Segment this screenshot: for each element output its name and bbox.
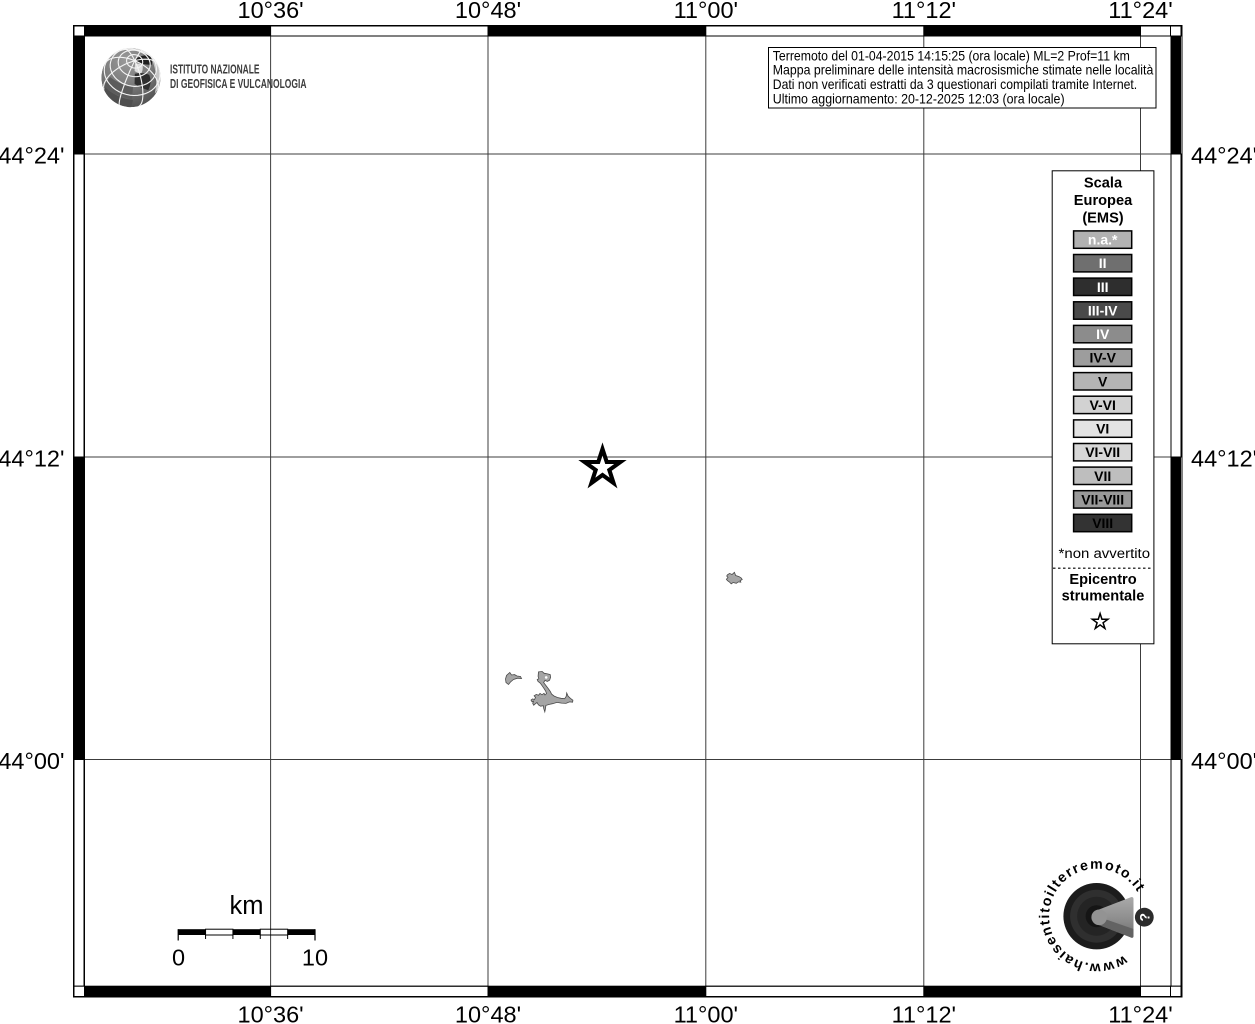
- svg-text:km: km: [230, 892, 264, 920]
- svg-text:44°12': 44°12': [0, 446, 65, 472]
- svg-text:Terremoto del 01-04-2015 14:15: Terremoto del 01-04-2015 14:15:25 (ora l…: [773, 48, 1130, 63]
- svg-text:Ultimo aggiornamento: 20-12-20: Ultimo aggiornamento: 20-12-2025 12:03 (…: [773, 91, 1065, 106]
- svg-text:10°36': 10°36': [238, 1002, 304, 1024]
- svg-text:VIII: VIII: [1092, 515, 1113, 531]
- svg-text:Mappa preliminare delle intens: Mappa preliminare delle intensità macros…: [773, 63, 1154, 78]
- svg-text:11°00': 11°00': [674, 1002, 738, 1024]
- svg-text:VII-VIII: VII-VIII: [1081, 491, 1124, 507]
- svg-text:Epicentro: Epicentro: [1069, 572, 1136, 588]
- svg-text:11°24': 11°24': [1108, 0, 1172, 23]
- svg-text:V-VI: V-VI: [1089, 397, 1115, 413]
- svg-text:III-IV: III-IV: [1088, 303, 1118, 319]
- svg-text:IV: IV: [1096, 326, 1110, 342]
- svg-text:strumentale: strumentale: [1062, 589, 1145, 605]
- svg-text:IV-V: IV-V: [1089, 350, 1116, 366]
- svg-text:III: III: [1097, 279, 1109, 295]
- svg-text:10: 10: [302, 945, 328, 971]
- svg-text:44°00': 44°00': [1191, 748, 1255, 774]
- svg-text:VII: VII: [1094, 468, 1111, 484]
- svg-text:Dati non verificati estratti d: Dati non verificati estratti da 3 questi…: [773, 77, 1137, 92]
- svg-text:?: ?: [1136, 913, 1152, 922]
- svg-text:11°12': 11°12': [892, 0, 956, 23]
- svg-text:10°36': 10°36': [238, 0, 304, 23]
- svg-text:0: 0: [172, 945, 185, 971]
- svg-text:(EMS): (EMS): [1082, 210, 1123, 226]
- svg-text:44°24': 44°24': [0, 143, 65, 169]
- svg-text:Scala: Scala: [1084, 175, 1123, 191]
- svg-text:Europea: Europea: [1074, 193, 1133, 209]
- svg-text:*non avvertito: *non avvertito: [1059, 546, 1151, 561]
- svg-text:II: II: [1099, 255, 1107, 271]
- svg-text:44°00': 44°00': [0, 748, 65, 774]
- svg-text:10°48': 10°48': [455, 0, 521, 23]
- svg-text:10°48': 10°48': [455, 1002, 521, 1024]
- svg-text:11°00': 11°00': [674, 0, 738, 23]
- svg-text:VI-VII: VI-VII: [1085, 444, 1120, 460]
- svg-text:V: V: [1098, 373, 1108, 389]
- svg-text:n.a.*: n.a.*: [1088, 232, 1118, 248]
- svg-text:11°12': 11°12': [892, 1002, 956, 1024]
- svg-text:DI GEOFISICA E VULCANOLOGIA: DI GEOFISICA E VULCANOLOGIA: [170, 77, 307, 91]
- svg-text:44°24': 44°24': [1191, 143, 1255, 169]
- svg-text:VI: VI: [1096, 421, 1109, 437]
- svg-text:44°12': 44°12': [1191, 446, 1255, 472]
- svg-text:11°24': 11°24': [1108, 1002, 1172, 1024]
- svg-text:ISTITUTO NAZIONALE: ISTITUTO NAZIONALE: [170, 63, 260, 77]
